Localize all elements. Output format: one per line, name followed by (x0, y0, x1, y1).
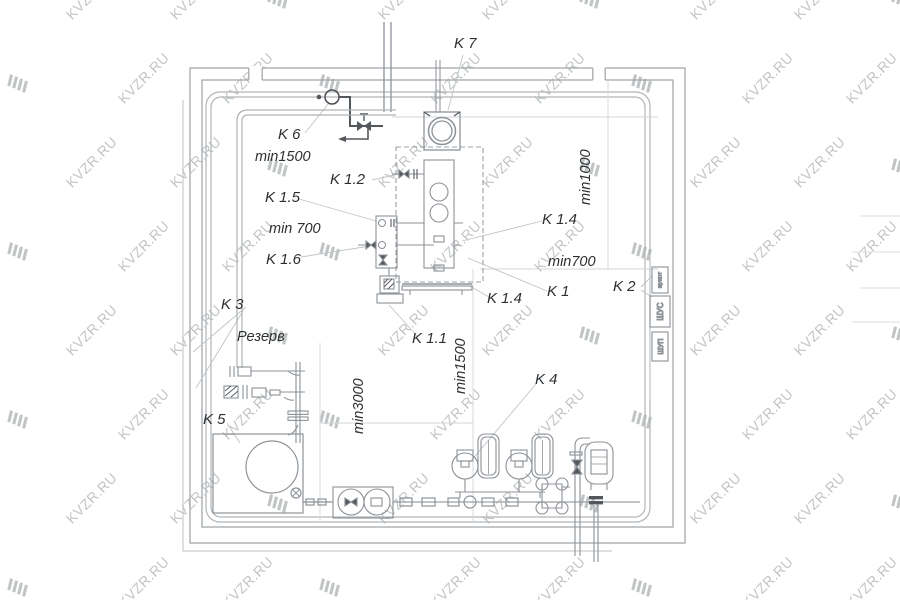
label-k11: K 1.1 (412, 330, 447, 347)
label-k1: K 1 (547, 283, 570, 300)
fuel-tank-outline (213, 434, 303, 513)
flow-arrow-icon (338, 136, 346, 142)
control-cabinets: ЩУКОТ ШУС ШУП (650, 255, 670, 400)
gas-pipe (317, 90, 383, 142)
label-k3: K 3 (221, 296, 244, 313)
label-k12: K 1.2 (330, 171, 366, 188)
label-k15: K 1.5 (265, 189, 301, 206)
label-min700-right: min700 (548, 254, 596, 270)
label-k6: K 6 (278, 126, 301, 143)
offcanvas-lines (852, 216, 900, 322)
label-k2: K 2 (613, 278, 636, 295)
pump-motor-right (511, 450, 527, 461)
boiler-gauge-upper (430, 183, 448, 201)
expansion-vessel (585, 442, 613, 484)
label-reserve: Резерв (237, 329, 285, 345)
plan-labels: K 7 K 6 min1500 K 1.2 K 1.5 min 700 K 1.… (203, 35, 636, 434)
label-k4: K 4 (535, 371, 558, 388)
top-door-gap-right (593, 66, 605, 82)
label-k5: K 5 (203, 411, 226, 428)
plan-svg: ЩУКОТ ШУС ШУП (0, 0, 900, 600)
label-min1500-mid: min1500 (453, 338, 469, 394)
gas-valve-icon (357, 121, 364, 131)
pump-circle-right (506, 453, 532, 479)
boiler-unit (358, 147, 483, 303)
burner-flange (224, 386, 238, 398)
boiler-room-plan-drawing: KVZR.RUKVZR.RUKVZR.RUKVZR.RUKVZR.RUKVZR.… (0, 0, 900, 600)
pipe-dot (317, 95, 322, 100)
pump-motor-left (457, 450, 473, 461)
cabinet-schukot-label: ЩУКОТ (658, 272, 663, 288)
label-min1000: min1000 (578, 149, 594, 205)
drawing-layer: ЩУКОТ ШУС ШУП (0, 0, 900, 600)
label-k7: K 7 (454, 35, 477, 52)
reserve-burner-assembly (224, 362, 308, 443)
label-min3000: min3000 (351, 378, 367, 434)
boiler-outline (396, 147, 483, 282)
fuel-tank (213, 434, 333, 513)
fuel-filter-block (333, 487, 393, 518)
cabinet-shup-label: ШУП (658, 339, 665, 355)
top-door-gap-left (249, 66, 262, 82)
cabinet-shus-label: ШУС (656, 302, 665, 320)
boiler-gauge-lower (430, 204, 448, 222)
label-min700-left: min 700 (269, 221, 321, 237)
chimney-duct (384, 22, 460, 150)
filter-circle-right (364, 489, 390, 515)
label-k14-upper: K 1.4 (542, 211, 577, 228)
room-walls (190, 66, 685, 543)
label-k16: K 1.6 (266, 251, 302, 268)
label-min1500-top: min1500 (255, 149, 311, 165)
fuel-tank-circle (246, 441, 298, 493)
pump-circle-left (452, 453, 478, 479)
boiler-panel (424, 160, 454, 268)
label-k14-lower: K 1.4 (487, 290, 522, 307)
